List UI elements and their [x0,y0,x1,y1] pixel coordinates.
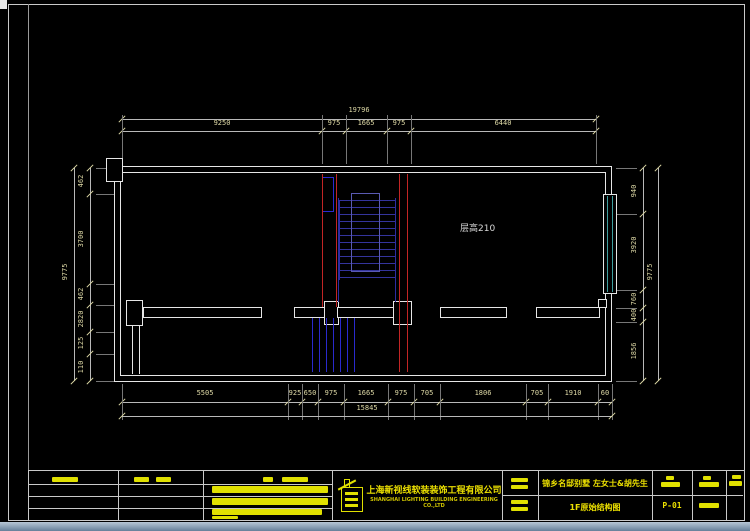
stair-hatch-line [333,318,334,372]
dimension-label: 1806 [475,389,492,397]
dimension-line [90,168,91,381]
wall-mid-segment [440,307,507,318]
dimension-label: 650 [304,389,317,397]
dimension-label: 400 [630,309,638,322]
wall-lower-left-line [132,325,133,374]
dimension-label: 3920 [630,237,638,254]
text-smudge [156,477,171,482]
dimension-label: 6440 [495,119,512,127]
company-name-cn: 上海新视线软装装饰工程有限公司 [366,483,502,496]
extension-line [96,305,114,306]
extension-line [548,384,549,420]
dimension-line [74,168,75,381]
text-smudge [212,486,328,493]
window-corner-mark [0,0,7,9]
stamp-mark [699,482,719,487]
dimension-line [658,168,659,381]
dimension-label: 975 [325,389,338,397]
stamp-mark [732,475,741,479]
text-smudge [134,477,149,482]
wall-lower-left-line [139,325,140,374]
text-smudge [212,509,322,515]
extension-line [616,322,637,323]
extension-line [526,384,527,420]
dimension-label: 1665 [358,119,375,127]
extension-line [96,194,114,195]
wall-pillar-left [126,300,143,326]
dimension-label: 125 [77,337,85,350]
dimension-label: 1665 [358,389,375,397]
extension-line [96,284,114,285]
stair-edge-line [395,198,396,302]
text-smudge [511,485,528,489]
dimension-label: 110 [77,361,85,374]
text-smudge [511,500,528,504]
text-smudge [511,478,528,482]
extension-line [440,384,441,420]
dimension-label: 975 [328,119,341,127]
extension-line [387,115,388,164]
red-axis-line [336,174,337,307]
wall-mid-segment [294,307,327,318]
text-smudge [282,477,308,482]
extension-line [346,115,347,164]
stair-hatch-line [326,318,327,372]
stamp-mark [703,476,711,480]
dimension-line [122,402,612,403]
titleblock-row-line [28,496,332,497]
extension-line [318,384,319,420]
dimension-label: 9775 [61,264,69,281]
dimension-label: 5505 [197,389,214,397]
extension-line [616,381,637,382]
extension-line [322,115,323,164]
company-logo-icon [345,498,358,501]
stair-hatch-line [354,318,355,372]
extension-line [616,168,637,169]
wall-step-right [598,299,607,308]
stair-hatch-line [340,318,341,372]
text-smudge [511,507,528,511]
extension-line [411,115,412,164]
window-glass-line [607,196,608,292]
window-bottom-strip [0,522,750,531]
text-smudge [212,516,238,519]
stamp-mark [729,481,742,486]
dimension-label: 975 [393,119,406,127]
project-title: 锦乡名邸别墅 左女士&胡先生 [540,478,650,489]
titleblock-row-line [28,484,332,485]
titleblock-row-line [502,495,743,496]
red-axis-line [407,174,408,372]
titleblock-divider [203,470,204,520]
dimension-label: 462 [77,288,85,301]
dimension-line [122,416,612,417]
dimension-line [643,168,644,381]
dimension-label: 975 [395,389,408,397]
dimension-label: 15845 [356,404,377,412]
extension-line [598,384,599,420]
text-smudge [212,498,328,505]
dimension-label: 1910 [565,389,582,397]
extension-line [96,381,114,382]
company-logo-icon [345,504,358,507]
dimension-label: 760 [630,293,638,306]
wall-notch-topleft [106,158,123,182]
extension-line [344,384,345,420]
room-height-label: 层高210 [460,221,495,234]
extension-line [96,332,114,333]
extension-line [96,354,114,355]
extension-line [122,115,123,164]
extension-line [596,115,597,164]
stair-hatch-line [319,318,320,372]
window-glass-line [612,196,613,292]
door-blue-box [322,177,334,212]
dimension-label: 705 [531,389,544,397]
wall-block [393,301,412,325]
dimension-label: 9775 [646,264,654,281]
dimension-label: 925 [289,389,302,397]
dimension-label: 705 [421,389,434,397]
stamp-mark [661,482,680,487]
wall-mid-segment [143,307,262,318]
extension-line [616,214,637,215]
text-smudge [52,477,78,482]
company-name-en: SHANGHAI LIGHTING BUILDING ENGINEERING C… [366,497,502,509]
extension-line [616,290,637,291]
dimension-line [122,131,596,132]
extension-line [388,384,389,420]
red-axis-line [322,174,323,307]
stair-hatch-line [312,318,313,372]
cad-sheet: 1979692509751665975644055059256509751665… [0,0,750,531]
dimension-label: 60 [601,389,609,397]
wall-mid-segment [337,307,396,318]
stair-hatch-line [347,318,348,372]
dimension-label: 19796 [348,106,369,114]
titleblock-divider [118,470,119,520]
text-smudge [263,477,273,482]
dimension-label: 940 [630,185,638,198]
red-axis-line [399,174,400,372]
dimension-label: 3700 [77,231,85,248]
titleblock-divider [332,470,333,520]
dimension-label: 462 [77,175,85,188]
drawing-title: 1F原始结构图 [540,502,650,513]
dimension-label: 9250 [214,119,231,127]
dimension-label: 2820 [77,311,85,328]
dimension-label: 1856 [630,343,638,360]
stamp-mark [666,476,674,480]
extension-line [414,384,415,420]
stair-well-outline [351,193,380,272]
stamp-mark [699,503,719,508]
sheet-number: P-01 [652,501,692,510]
company-logo-icon [345,492,358,495]
wall-mid-segment [536,307,600,318]
window-right [603,194,617,294]
sheet-inner-margin-line [28,4,29,520]
